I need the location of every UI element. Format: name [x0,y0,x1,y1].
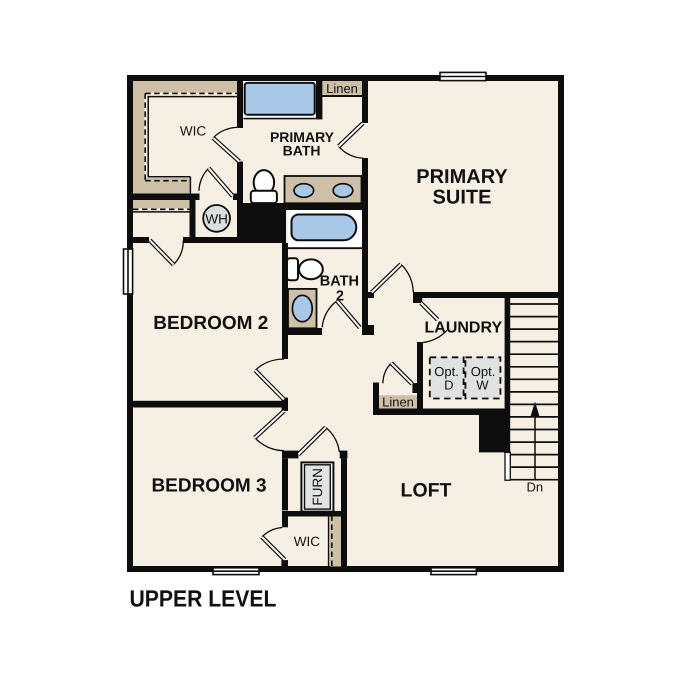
svg-text:LAUNDRY: LAUNDRY [424,320,502,337]
svg-text:FURN: FURN [310,468,325,506]
svg-text:PRIMARY: PRIMARY [416,166,508,188]
svg-text:WIC: WIC [294,534,320,549]
svg-text:2: 2 [336,289,344,305]
svg-text:BATH: BATH [320,274,359,290]
svg-text:LOFT: LOFT [401,479,452,501]
svg-text:BEDROOM 2: BEDROOM 2 [153,313,268,334]
svg-text:Linen: Linen [382,394,414,409]
svg-text:UPPER LEVEL: UPPER LEVEL [130,586,277,612]
svg-text:BATH: BATH [283,143,321,159]
svg-text:WIC: WIC [180,123,206,138]
svg-text:Linen: Linen [326,81,358,96]
svg-text:D: D [444,378,453,393]
svg-text:BEDROOM 3: BEDROOM 3 [151,475,266,496]
svg-text:Dn: Dn [527,479,544,494]
svg-text:W: W [476,378,489,393]
svg-text:WH: WH [205,211,228,226]
svg-text:SUITE: SUITE [433,187,492,209]
